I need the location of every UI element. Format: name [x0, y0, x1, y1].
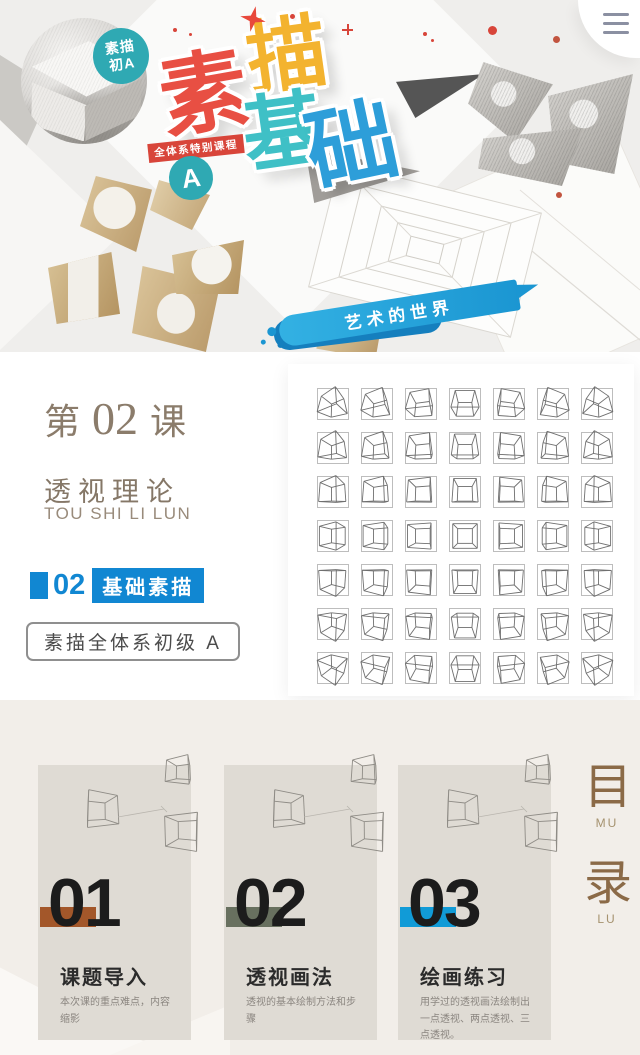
toc-item-number: 03: [408, 869, 480, 937]
toc-pinyin-lu: LU: [584, 912, 630, 926]
toc-vertical-label: 目 MU 录 LU: [584, 762, 630, 926]
toc-card-2: 02 透视画法 透视的基本绘制方法和步骤: [224, 765, 377, 1040]
hamburger-icon: [603, 13, 629, 40]
lesson-section: 第 02 课 透视理论 TOU SHI LI LUN 02 基础素描 素描全体系…: [0, 352, 640, 700]
lesson-title: 第 02 课: [44, 396, 186, 442]
toc-item-description: 本次课的重点难点，内容缩影: [60, 995, 179, 1028]
toc-section: 01 课题导入 本次课的重点难点，内容缩影 02 透视画法 透视的基本绘制方法和…: [0, 700, 640, 1055]
ribbon-tail: [516, 284, 538, 299]
lesson-suffix: 课: [150, 404, 186, 440]
badge-line2: 初A: [108, 54, 136, 75]
red-dot: [173, 28, 177, 32]
lesson-prefix: 第: [44, 404, 80, 440]
toc-item-description: 用学过的透视画法绘制出一点透视、两点透视、三点透视。: [420, 995, 539, 1045]
tag-label: 基础素描: [92, 568, 204, 603]
toc-item-number: 02: [234, 869, 306, 937]
toc-card-3: 03 绘画练习 用学过的透视画法绘制出一点透视、两点透视、三点透视。: [398, 765, 551, 1040]
lesson-number: 02: [92, 396, 138, 442]
tag-number: 02: [53, 569, 85, 602]
cube-grid-panel: [288, 364, 634, 696]
toc-pinyin-mu: MU: [584, 816, 630, 830]
toc-item-number: 01: [48, 869, 120, 937]
menu-button[interactable]: [578, 0, 640, 58]
toc-char-mu: 目: [584, 762, 630, 815]
red-dot: [556, 192, 562, 198]
red-dot: [553, 36, 560, 43]
red-dot: [290, 14, 295, 19]
lesson-pinyin: TOU SHI LI LUN: [44, 504, 191, 524]
toc-char-lu: 录: [584, 858, 630, 911]
title-char-chu: 础: [299, 94, 406, 201]
paint-drip: [260, 339, 266, 345]
toc-card-1: 01 课题导入 本次课的重点难点，内容缩影: [38, 765, 191, 1040]
cube-rotation-grid: [288, 364, 634, 696]
red-dot: [488, 26, 497, 35]
toc-item-description: 透视的基本绘制方法和步骤: [246, 995, 365, 1028]
toc-item-title: 绘画练习: [420, 961, 508, 990]
sparkle-icon: [238, 4, 269, 35]
series-level-box: 素描全体系初级 A: [26, 622, 240, 661]
photo-shard-cube: [172, 240, 244, 294]
lesson-tag: 02 基础素描: [30, 568, 204, 603]
plus-icon: [342, 24, 353, 35]
toc-item-title: 透视画法: [246, 961, 334, 990]
red-dot: [431, 39, 434, 42]
tag-square-decoration: [30, 572, 48, 599]
red-dot: [189, 33, 192, 36]
hero-banner: 素描 初A 素 描 基 础 全体系特别课程 A 艺术的世界: [0, 0, 640, 352]
red-dot: [423, 32, 427, 36]
toc-item-title: 课题导入: [60, 961, 148, 990]
course-page: 素描 初A 素 描 基 础 全体系特别课程 A 艺术的世界: [0, 0, 640, 1055]
